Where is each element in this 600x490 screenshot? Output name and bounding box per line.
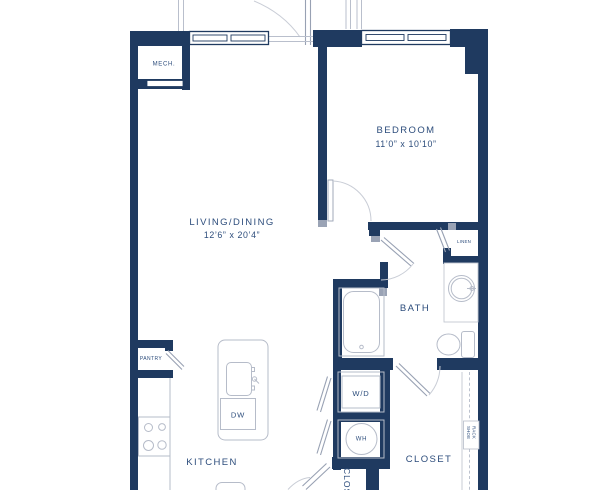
bathtub-drain [360, 345, 364, 349]
wall-left [130, 46, 138, 490]
burner-icon [145, 424, 153, 432]
jamb [448, 223, 456, 230]
jamb [318, 220, 327, 227]
mech-door [147, 81, 183, 87]
bath-wall [335, 279, 388, 288]
bottom-closet-door-leaf [303, 464, 331, 490]
bedroom-door-swing-arc [333, 181, 371, 221]
closet-door-swing-arc [429, 366, 440, 395]
wall-extension-line [346, 0, 362, 29]
kitchen-island [218, 340, 268, 440]
floor-plan: LIVING/DINING 12’6” x 20’4” BEDROOM 11’0… [0, 0, 600, 490]
wall-stub [369, 229, 380, 236]
pantry-wall [130, 370, 173, 378]
window-sash [231, 35, 265, 41]
bath-bottom-wall [333, 358, 393, 370]
bath-vanity [444, 263, 478, 322]
toilet-bowl [437, 334, 460, 355]
bedroom-bottom-wall [368, 222, 480, 230]
shoe-rack-label-line1: SHOE [466, 426, 471, 439]
wall-stub [380, 262, 388, 280]
island-stool [216, 483, 245, 490]
island-outline [218, 340, 268, 440]
linen-wall-stub [443, 248, 451, 264]
exterior-wall-extension-lines [179, 0, 362, 31]
bath-label: BATH [400, 303, 430, 314]
entry-threshold-lines [267, 37, 313, 42]
pantry-door-leaf [166, 351, 184, 370]
dishwasher-label: DW [231, 411, 245, 420]
mech-label: MECH. [153, 62, 176, 68]
linen-label: LINEN [457, 239, 471, 244]
washer-dryer-label: W/D [352, 389, 369, 398]
closet-label: CLOSET [406, 454, 452, 465]
closet-divider-wall [366, 469, 379, 490]
bedroom-door-leaf [328, 180, 333, 221]
living-dining-dimensions: 12’6” x 20’4” [204, 230, 260, 240]
water-heater-closet-door-leaf [317, 420, 331, 456]
washer-closet-door-leaf [317, 377, 331, 413]
stove [139, 417, 171, 456]
window-sash [366, 35, 404, 41]
closet-top-wall [437, 358, 488, 370]
vertical-closet-label: CLOSET [342, 468, 352, 490]
room-labels: LIVING/DINING 12’6” x 20’4” BEDROOM 11’0… [140, 62, 471, 490]
toilet [437, 332, 475, 358]
closet-door-leaf [396, 364, 430, 397]
bath-wall [333, 279, 342, 360]
water-heater-label: WH [356, 437, 367, 443]
wall [130, 31, 190, 46]
bathtub-basin [344, 292, 380, 353]
bedroom-dimensions: 11’0” x 10’10” [375, 139, 436, 149]
jamb [371, 236, 380, 242]
burner-icon [144, 441, 154, 451]
wall [313, 30, 362, 47]
wall [450, 29, 488, 47]
pantry-label: PANTRY [140, 356, 162, 362]
bathtub-outline [339, 288, 384, 356]
walls [130, 29, 488, 490]
entry-door-leaf [306, 0, 311, 45]
burner-icon [158, 441, 166, 449]
floor-plan-canvas: LIVING/DINING 12’6” x 20’4” BEDROOM 11’0… [0, 0, 600, 490]
wall-extension-line [179, 0, 184, 31]
wall-right [478, 47, 488, 490]
pantry-wall-stub [165, 340, 173, 351]
shoe-rack-label-line2: RACK [472, 426, 477, 439]
bedroom-label: BEDROOM [377, 125, 436, 136]
window-sash [408, 35, 446, 41]
jamb [379, 288, 387, 296]
burner-icon [159, 424, 166, 431]
kitchen-label: KITCHEN [186, 457, 238, 468]
window-sash [193, 35, 227, 41]
laundry-bottom-wall [332, 457, 390, 469]
bottom-door-swing-arc [288, 478, 310, 490]
toilet-tank [462, 332, 475, 358]
stove-outline [139, 417, 171, 456]
bath-door-leaf [381, 238, 414, 267]
bedroom-divider-wall [318, 47, 327, 220]
living-dining-label: LIVING/DINING [189, 217, 274, 228]
bathtub [339, 288, 384, 356]
